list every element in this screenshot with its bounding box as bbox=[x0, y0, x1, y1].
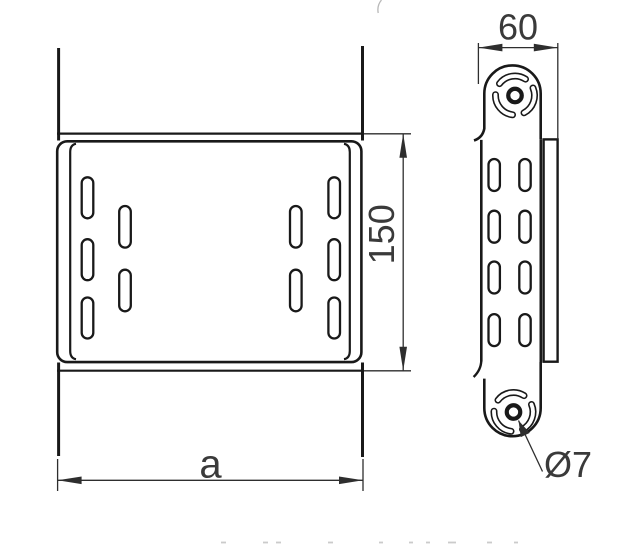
slot-hole bbox=[519, 211, 530, 243]
slot-hole bbox=[328, 177, 340, 218]
slot-hole bbox=[489, 211, 500, 243]
slot-hole bbox=[328, 239, 340, 280]
slot-hole bbox=[290, 206, 302, 248]
arrowhead-down bbox=[399, 347, 407, 371]
side-view-slots bbox=[489, 159, 531, 346]
arrowhead-left bbox=[58, 477, 82, 485]
slot-hole bbox=[519, 159, 530, 191]
dim-label-150: 150 bbox=[361, 204, 402, 264]
slot-hole bbox=[119, 206, 131, 248]
center-hole bbox=[507, 405, 521, 419]
arrowhead-up bbox=[399, 134, 407, 158]
slot-hole bbox=[290, 270, 302, 312]
slot-hole bbox=[519, 262, 530, 294]
cropped-mark-top bbox=[378, 0, 382, 13]
slot-hole bbox=[82, 298, 94, 339]
slot-hole bbox=[489, 262, 500, 294]
slot-hole bbox=[119, 270, 131, 312]
slot-hole bbox=[519, 314, 530, 346]
slot-hole bbox=[82, 239, 94, 280]
connector-plate-drawing: 60 150 a Ø7 bbox=[0, 0, 621, 544]
dim-label-60: 60 bbox=[498, 7, 538, 48]
slot-hole bbox=[489, 314, 500, 346]
dimension-length-a: a bbox=[58, 443, 363, 492]
dim-label-a: a bbox=[199, 443, 222, 487]
front-view bbox=[57, 46, 364, 457]
knockout-top bbox=[495, 76, 534, 115]
strap-bottom-hook bbox=[474, 361, 482, 378]
knockout-bottom bbox=[494, 392, 533, 431]
slot-hole bbox=[328, 298, 340, 339]
tray-rail-profile bbox=[544, 139, 558, 361]
slot-hole bbox=[489, 159, 500, 191]
slot-hole bbox=[82, 177, 94, 218]
cropped-text-bottom bbox=[221, 542, 518, 544]
connector-plate-outline bbox=[57, 141, 361, 362]
arrowhead-right bbox=[339, 477, 363, 485]
side-view bbox=[474, 65, 558, 436]
dim-label-hole: Ø7 bbox=[544, 444, 592, 485]
dimension-height-150: 150 bbox=[361, 134, 411, 371]
center-hole bbox=[508, 89, 522, 103]
technical-drawing-canvas: 60 150 a Ø7 bbox=[0, 0, 621, 544]
